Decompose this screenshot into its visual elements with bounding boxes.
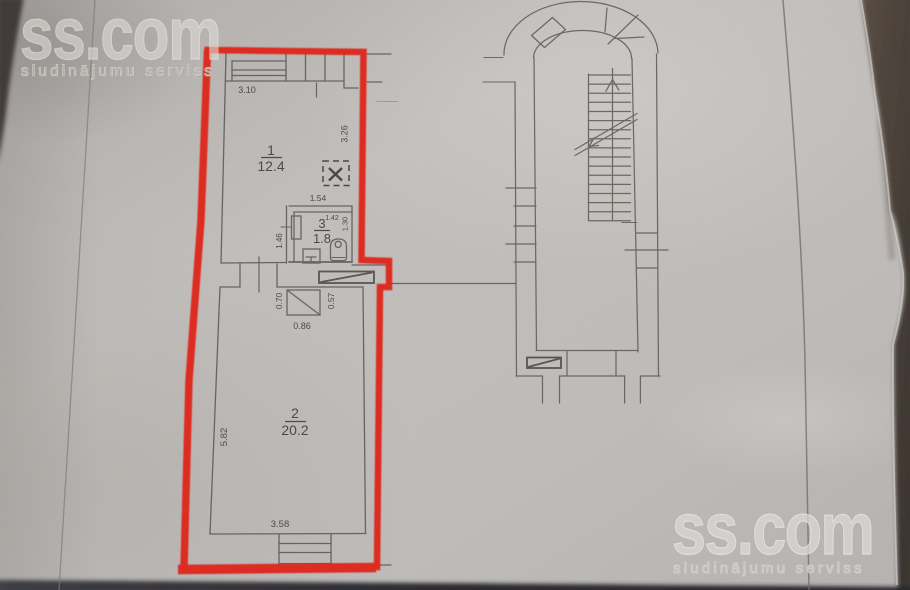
svg-text:2: 2 [291, 405, 299, 421]
svg-text:sludinājumu serviss: sludinājumu serviss [22, 64, 216, 81]
svg-text:1.42: 1.42 [325, 215, 339, 222]
svg-text:ss.com: ss.com [672, 489, 873, 570]
svg-text:1.30: 1.30 [341, 217, 350, 232]
svg-text:0.70: 0.70 [274, 292, 284, 309]
svg-text:1: 1 [267, 142, 275, 158]
svg-text:0.86: 0.86 [293, 321, 311, 331]
svg-text:5.82: 5.82 [219, 428, 230, 447]
svg-text:12.4: 12.4 [257, 158, 284, 174]
svg-text:3.26: 3.26 [340, 125, 350, 143]
svg-text:20.2: 20.2 [281, 422, 308, 438]
svg-text:0.57: 0.57 [326, 292, 336, 309]
svg-text:3: 3 [318, 216, 325, 231]
svg-text:1.54: 1.54 [310, 193, 327, 203]
svg-text:sludinājumu serviss: sludinājumu serviss [673, 560, 865, 577]
svg-text:3.58: 3.58 [271, 519, 290, 530]
svg-text:3.10: 3.10 [238, 85, 256, 95]
svg-text:1.8: 1.8 [313, 231, 331, 246]
svg-text:1.46: 1.46 [275, 233, 284, 249]
